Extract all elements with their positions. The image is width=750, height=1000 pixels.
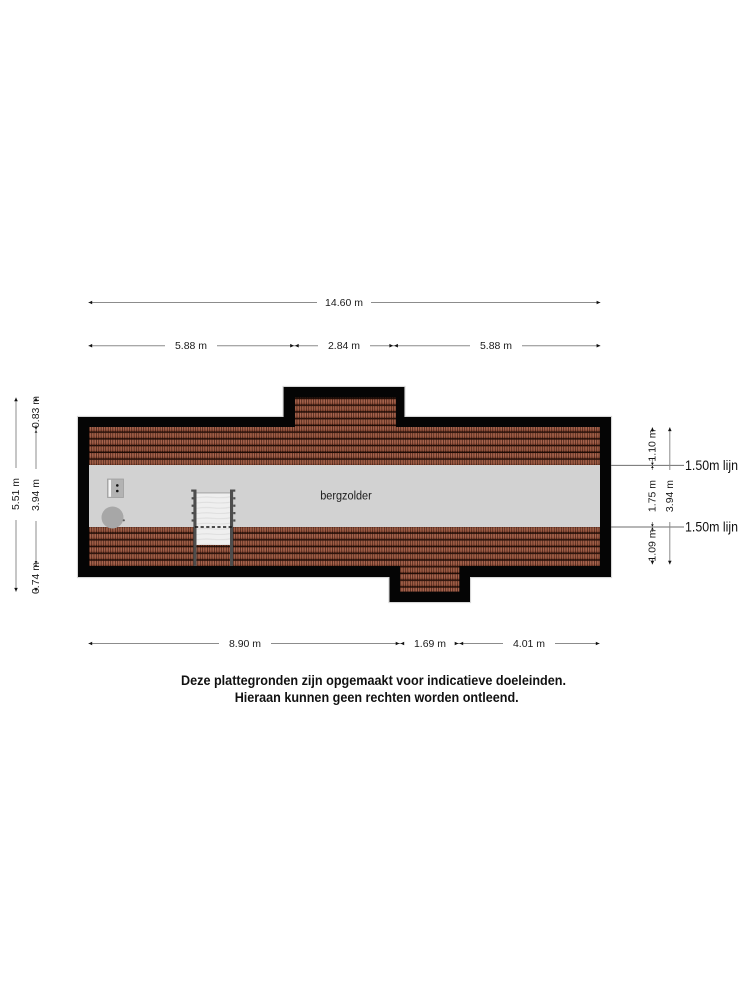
svg-text:14.60 m: 14.60 m — [325, 297, 363, 309]
svg-text:3.94 m: 3.94 m — [30, 479, 42, 511]
svg-text:5.88 m: 5.88 m — [480, 340, 512, 352]
svg-text:1.50m lijn: 1.50m lijn — [685, 520, 738, 535]
svg-text:1.09 m: 1.09 m — [647, 529, 659, 561]
svg-text:5.51 m: 5.51 m — [10, 478, 22, 510]
svg-text:8.90 m: 8.90 m — [229, 638, 261, 650]
svg-text:1.75 m: 1.75 m — [647, 480, 659, 512]
svg-text:2.84 m: 2.84 m — [328, 340, 360, 352]
svg-text:3.94 m: 3.94 m — [664, 480, 676, 512]
svg-text:bergzolder: bergzolder — [320, 491, 372, 503]
svg-text:1.69 m: 1.69 m — [414, 638, 446, 650]
svg-text:5.88 m: 5.88 m — [175, 340, 207, 352]
svg-text:4.01 m: 4.01 m — [513, 638, 545, 650]
svg-text:1.50m lijn: 1.50m lijn — [685, 458, 738, 473]
svg-text:Deze plattegronden zijn opgema: Deze plattegronden zijn opgemaakt voor i… — [181, 672, 566, 688]
svg-text:Hieraan kunnen geen rechten wo: Hieraan kunnen geen rechten worden ontle… — [235, 689, 519, 705]
svg-text:1.10 m: 1.10 m — [647, 429, 659, 461]
